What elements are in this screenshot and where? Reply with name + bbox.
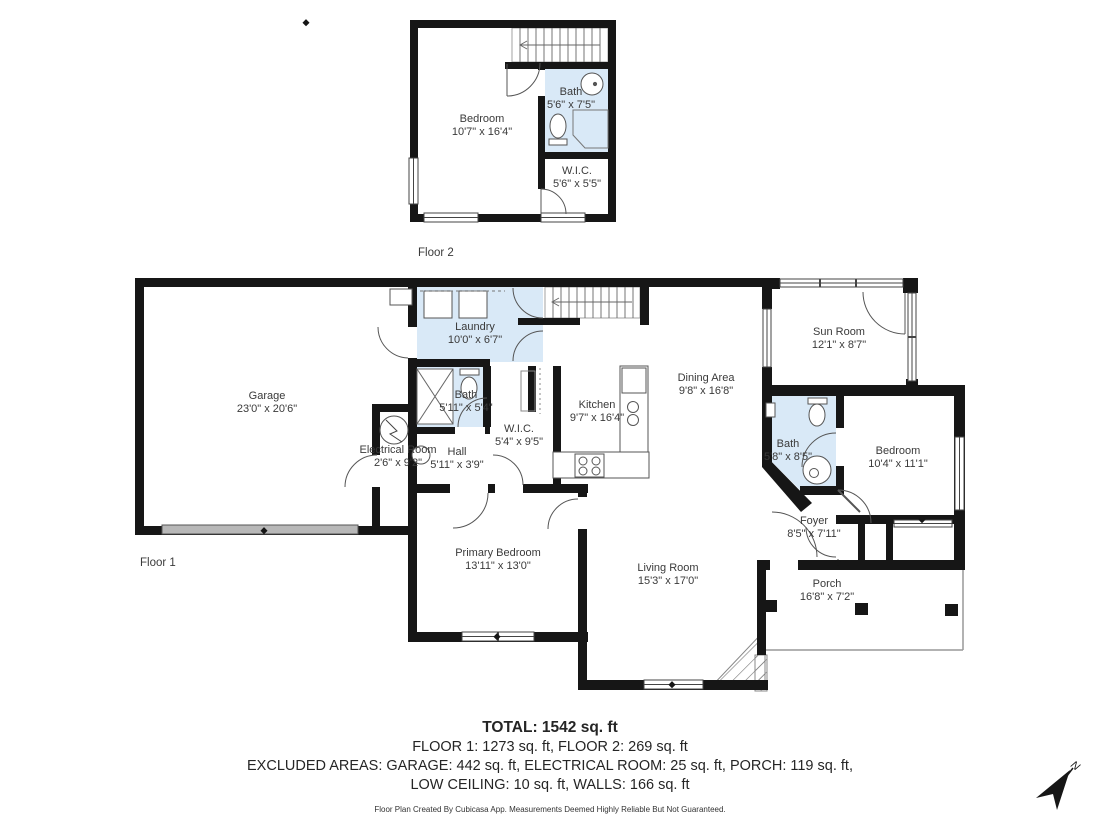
room-label-bath-2: Bath5'8" x 8'5" [764,438,812,464]
floor1-caption: Floor 1 [140,557,176,569]
area-summary: TOTAL: 1542 sq. ft FLOOR 1: 1273 sq. ft,… [0,718,1100,814]
garage-door [162,525,358,534]
stove-icon [575,454,604,477]
floorplan-page: N Bedroom10'7" x 16'4" Bath5'6" x 7'5" W… [0,0,1100,825]
summary-excluded-2: LOW CEILING: 10 sq. ft, WALLS: 166 sq. f… [0,776,1100,795]
room-label-living-room: Living Room15'3" x 17'0" [637,562,698,588]
room-label-bedroom-f2: Bedroom10'7" x 16'4" [452,113,512,139]
room-label-garage: Garage23'0" x 20'6" [237,390,297,416]
room-label-sun-room: Sun Room12'1" x 8'7" [812,326,866,352]
staircase-icon [512,28,608,62]
room-label-primary-bedroom: Primary Bedroom13'11" x 13'0" [455,547,541,573]
room-label-wic-f2: W.I.C.5'6" x 5'5" [553,165,601,191]
summary-disclaimer: Floor Plan Created By Cubicasa App. Meas… [0,805,1100,814]
room-label-porch: Porch16'8" x 7'2" [800,578,854,604]
room-label-bath-f2: Bath5'6" x 7'5" [547,86,595,112]
floor2-caption: Floor 2 [418,247,454,259]
porch-post [945,604,958,616]
toilet-icon [549,114,567,145]
room-label-foyer: Foyer8'5" x 7'11" [787,515,840,541]
room-label-electrical-room: Electrical Room2'6" x 9'2" [359,444,436,470]
summary-floors: FLOOR 1: 1273 sq. ft, FLOOR 2: 269 sq. f… [0,738,1100,757]
room-label-bedroom-f1: Bedroom10'4" x 11'1" [868,445,928,471]
room-label-laundry: Laundry10'0" x 6'7" [448,321,502,347]
room-label-dining-area: Dining Area9'8" x 16'8" [678,372,735,398]
room-label-bath-1: Bath5'11" x 5'4" [439,389,492,415]
room-label-hall: Hall5'11" x 3'9" [430,446,483,472]
fridge-icon [622,368,646,393]
staircase-icon [545,287,640,318]
porch-outline [764,564,963,650]
porch-post [855,603,868,615]
room-label-kitchen: Kitchen9'7" x 16'4" [570,399,624,425]
room-label-wic-f1: W.I.C.5'4" x 9'5" [495,423,543,449]
floor2-plan [409,20,616,222]
summary-total: TOTAL: 1542 sq. ft [0,718,1100,738]
sink-icon [766,403,775,417]
electrical-icon [380,416,408,444]
summary-excluded-1: EXCLUDED AREAS: GARAGE: 442 sq. ft, ELEC… [0,757,1100,776]
floorplan-drawing: N [0,0,1100,825]
